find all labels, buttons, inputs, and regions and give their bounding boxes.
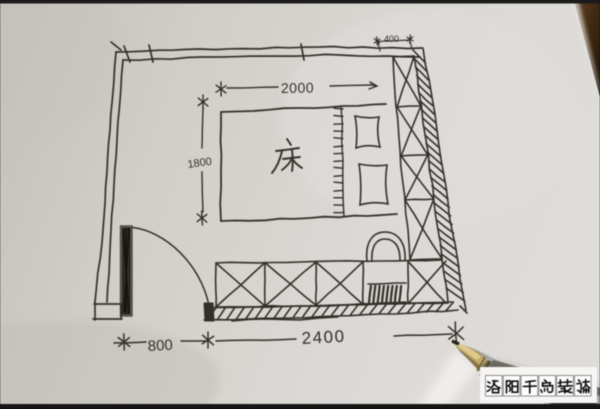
svg-text:2000: 2000 — [281, 79, 314, 96]
svg-text:800: 800 — [147, 337, 173, 355]
svg-text:2400: 2400 — [301, 327, 346, 348]
svg-text:400: 400 — [384, 34, 399, 44]
